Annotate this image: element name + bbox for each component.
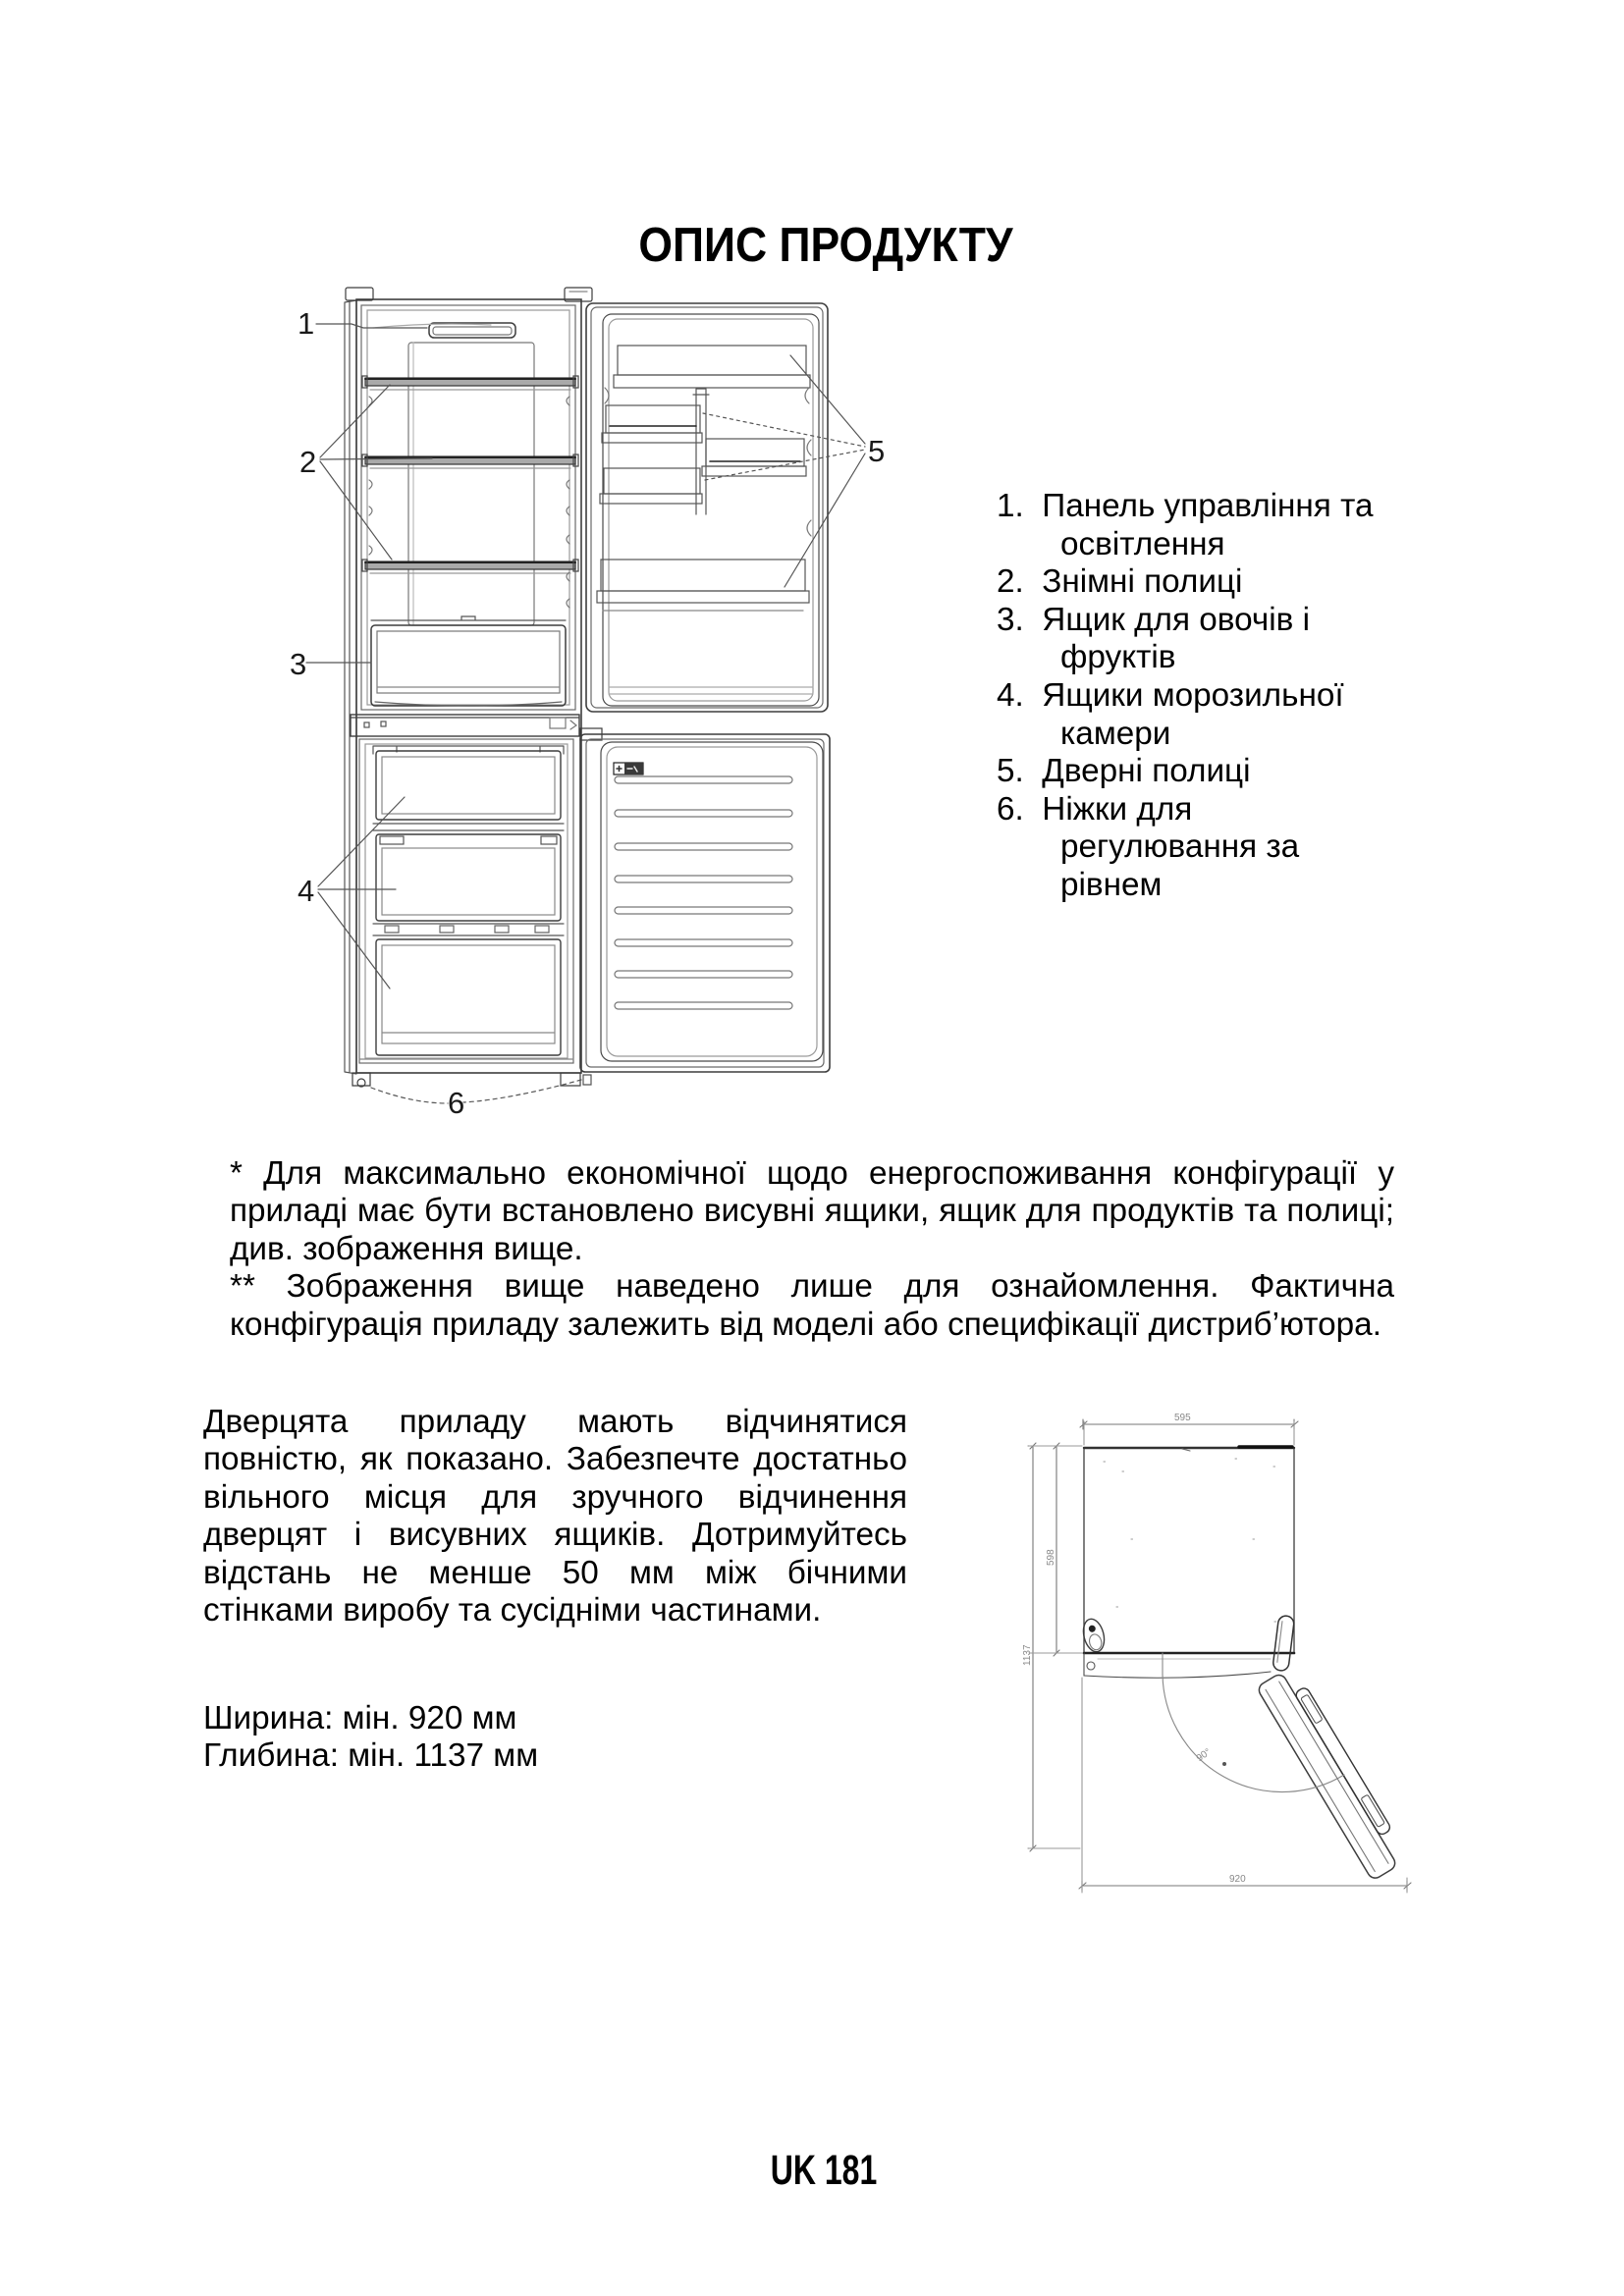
svg-text:90°: 90°	[1195, 1746, 1214, 1764]
svg-text:920: 920	[1229, 1874, 1246, 1885]
svg-text:UK 181: UK 181	[771, 2147, 877, 2193]
svg-text:3: 3	[290, 647, 306, 681]
svg-text:6: 6	[448, 1086, 464, 1120]
svg-text:ОПИС ПРОДУКТУ: ОПИС ПРОДУКТУ	[638, 217, 1013, 272]
svg-text:5: 5	[868, 434, 885, 468]
svg-text:1: 1	[298, 306, 314, 341]
svg-text:1137: 1137	[1022, 1644, 1033, 1666]
svg-text:2: 2	[299, 445, 316, 479]
svg-text:4: 4	[298, 874, 314, 908]
svg-text:595: 595	[1174, 1413, 1191, 1423]
svg-text:598: 598	[1046, 1549, 1056, 1566]
